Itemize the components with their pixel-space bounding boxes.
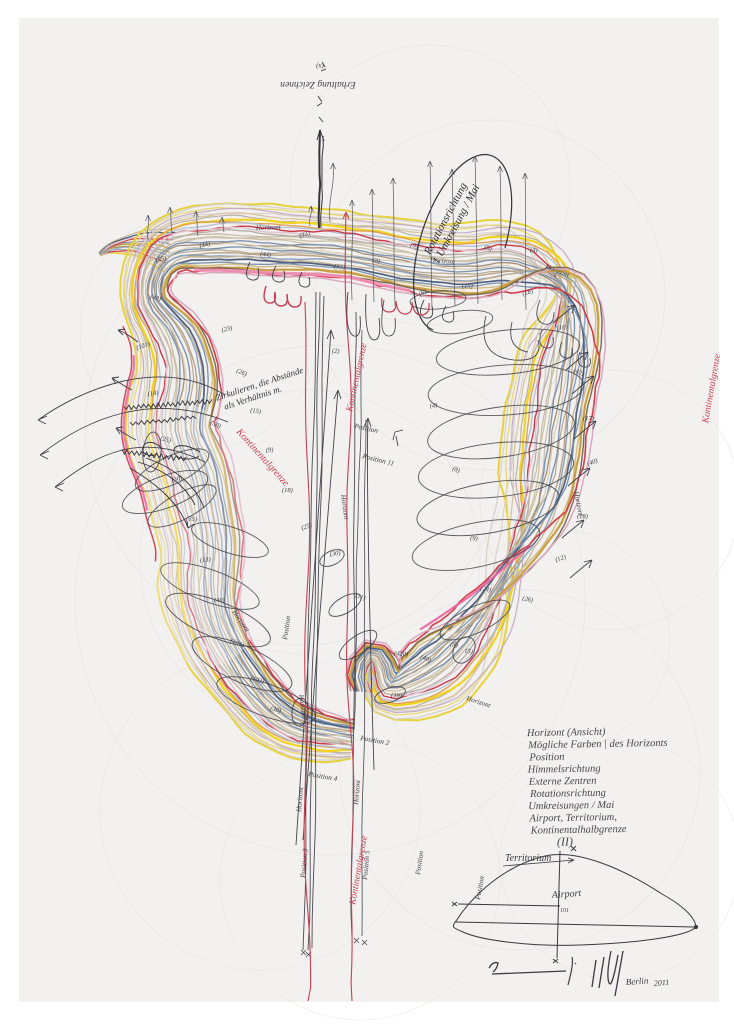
svg-text:(4): (4) xyxy=(429,402,437,410)
svg-text:(2): (2) xyxy=(372,257,381,265)
svg-text:(3): (3) xyxy=(530,247,538,254)
svg-text:(14): (14) xyxy=(147,390,159,398)
svg-text:(420): (420) xyxy=(394,650,409,658)
svg-text:(15): (15) xyxy=(462,283,473,290)
svg-text:Externe Zentren: Externe Zentren xyxy=(528,776,597,788)
svg-text:(13): (13) xyxy=(200,556,211,564)
svg-text:(9): (9) xyxy=(266,447,274,454)
svg-text:(17): (17) xyxy=(583,415,594,422)
svg-text:Kontinentalhalbgrenze: Kontinentalhalbgrenze xyxy=(530,824,627,837)
svg-text:(10): (10) xyxy=(557,324,568,332)
svg-text:(30): (30) xyxy=(329,550,341,558)
svg-text:(2): (2) xyxy=(332,348,340,355)
svg-text:(x): (x) xyxy=(315,62,323,70)
svg-text:(18): (18) xyxy=(577,513,588,520)
svg-text:(9): (9) xyxy=(470,535,478,543)
svg-text:Erhaltung Zeichnen: Erhaltung Zeichnen xyxy=(280,79,357,89)
svg-text:Airport: Airport xyxy=(550,888,581,901)
svg-text:(39): (39) xyxy=(391,692,402,699)
svg-text:(18): (18) xyxy=(282,487,293,494)
svg-text:Airport, Territorium,: Airport, Territorium, xyxy=(528,812,617,825)
svg-text:101: 101 xyxy=(560,908,569,914)
svg-text:Horizont (Ansicht): Horizont (Ansicht) xyxy=(526,727,606,739)
svg-text:(15): (15) xyxy=(250,407,262,415)
svg-text:(II): (II) xyxy=(557,834,573,848)
svg-text:Position: Position xyxy=(528,752,564,764)
svg-text:(33): (33) xyxy=(334,263,345,271)
svg-text:(35): (35) xyxy=(186,515,198,523)
svg-text:(44): (44) xyxy=(260,251,271,259)
svg-text:(40): (40) xyxy=(214,597,225,604)
svg-text:Horizont: Horizont xyxy=(255,223,282,232)
svg-text:Himmelsrichtung: Himmelsrichtung xyxy=(527,763,601,775)
svg-text:Rotationsrichtung: Rotationsrichtung xyxy=(529,788,606,800)
svg-text:Berlin: Berlin xyxy=(625,975,649,987)
svg-text:2011: 2011 xyxy=(654,978,670,988)
svg-text:Umkreisungen / Mai: Umkreisungen / Mai xyxy=(528,800,614,812)
